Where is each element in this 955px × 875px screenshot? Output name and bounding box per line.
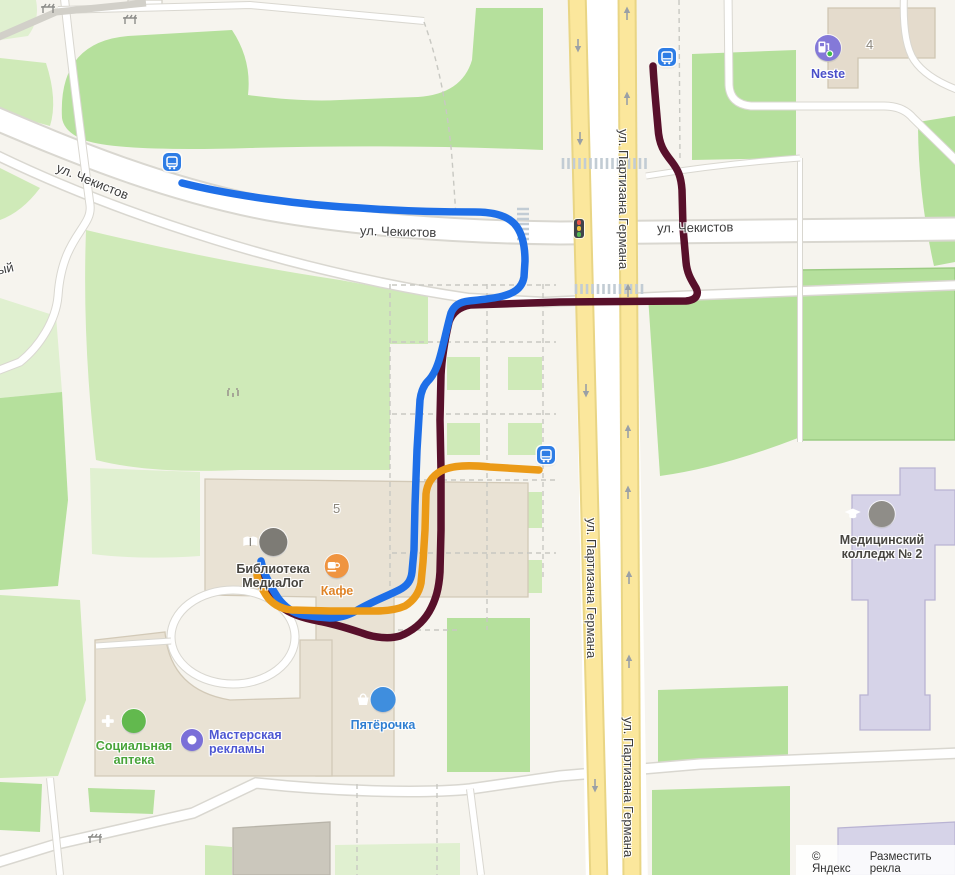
bus-stop-icon[interactable] — [163, 153, 181, 171]
cafe-icon[interactable] — [325, 554, 349, 578]
poi-med-college[interactable]: Медицинский колледж № 2 — [840, 501, 924, 561]
workshop-icon[interactable] — [181, 729, 203, 751]
pharmacy-cross-icon[interactable] — [122, 709, 146, 733]
street-label-partizana-north: ул. Партизана Германа — [616, 129, 631, 269]
attribution: © Яндекс Разместить рекла — [812, 851, 955, 875]
supermarket-icon[interactable] — [371, 687, 396, 712]
poi-neste[interactable]: Neste — [811, 35, 845, 82]
poi-label-line: Медицинский — [840, 534, 924, 548]
poi-label-line: Социальная — [96, 740, 172, 754]
poi-label-line: аптека — [96, 754, 172, 768]
college-icon[interactable] — [869, 501, 895, 527]
street-label-chekistov-east: ул. Чекистов — [657, 219, 734, 235]
traffic-light-icon — [574, 219, 584, 238]
place-ad-link[interactable]: Разместить рекла — [870, 851, 955, 875]
poi-label-line: колледж № 2 — [840, 548, 924, 562]
poi-label: Кафе — [321, 585, 353, 599]
fuel-station-icon[interactable] — [815, 35, 841, 61]
poi-cafe[interactable]: Кафе — [321, 554, 353, 599]
street-label-partizana-south: ул. Партизана Германа — [621, 717, 636, 857]
copyright-link[interactable]: © Яндекс — [812, 851, 857, 875]
poi-pyaterochka[interactable]: Пятёрочка — [351, 687, 416, 733]
building-number-4: 4 — [866, 37, 873, 52]
map-canvas[interactable]: ул. Чекистов ул. Чекистов ул. Чекистов у… — [0, 0, 955, 875]
bus-stop-icon[interactable] — [658, 48, 676, 66]
poi-label-line: Библиотека — [236, 563, 309, 577]
gray-building — [233, 822, 330, 875]
poi-label: Neste — [811, 68, 845, 82]
library-icon[interactable] — [259, 528, 287, 556]
bus-stop-icon[interactable] — [537, 446, 555, 464]
poi-label-line: МедиаЛог — [236, 577, 309, 591]
poi-label-line: рекламы — [209, 743, 282, 757]
poi-pharmacy[interactable]: Социальная аптека — [96, 709, 172, 767]
street-label-chekistov-mid: ул. Чекистов — [360, 223, 437, 240]
street-label-partizana-mid: ул. Партизана Германа — [584, 518, 599, 658]
building-number-5: 5 — [333, 501, 340, 516]
poi-label-line: Мастерская — [209, 729, 282, 743]
poi-label: Пятёрочка — [351, 719, 416, 733]
poi-library[interactable]: Библиотека МедиаЛог — [236, 528, 309, 590]
poi-ad-workshop[interactable]: Мастерская рекламы — [181, 729, 282, 756]
